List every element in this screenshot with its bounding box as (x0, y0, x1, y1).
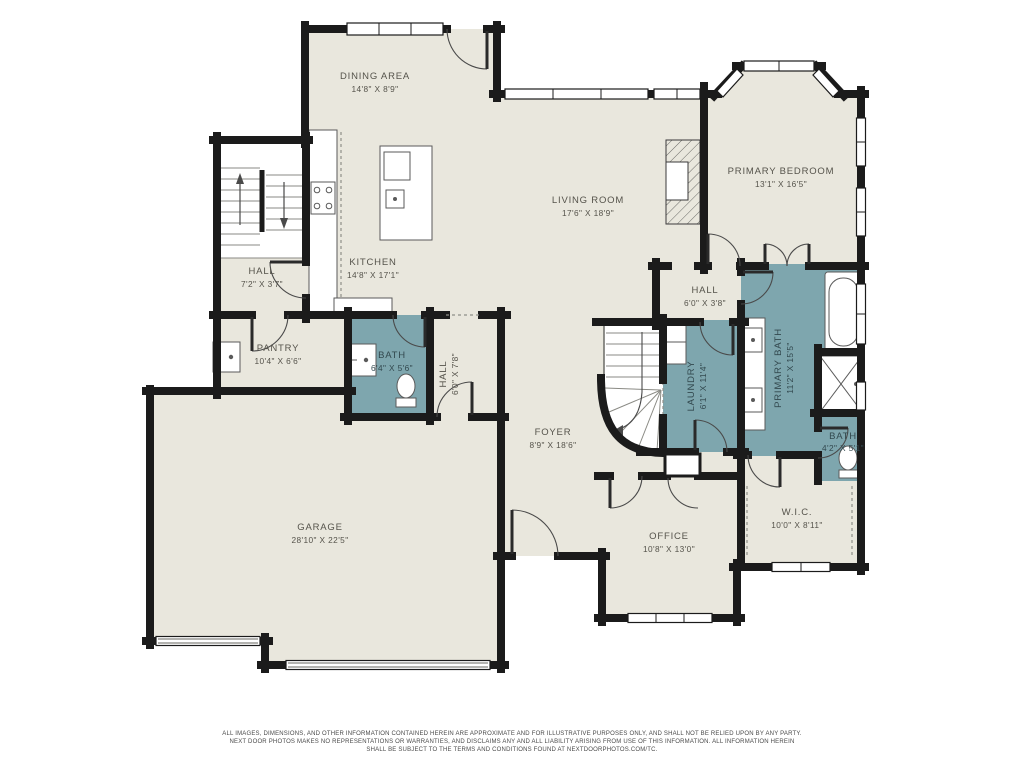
hall-mud-dims: 6'0" X 7'8" (450, 353, 460, 395)
hall-stairs-label: HALL (249, 266, 276, 277)
primary-bath-dims: 11'2" X 15'5" (785, 342, 795, 393)
kitchen-counter (309, 130, 337, 318)
hall-stairs-dims: 7'2" X 3'7" (241, 279, 283, 289)
foyer-dims: 8'9" X 18'6" (529, 440, 576, 450)
footer-disclaimer: ALL IMAGES, DIMENSIONS, AND OTHER INFORM… (222, 731, 802, 753)
range-stove (311, 182, 335, 214)
living-dims: 17'6" X 18'9" (562, 208, 614, 218)
office-window (628, 614, 712, 623)
dining-window (347, 23, 443, 35)
bath-small-label: BATH (829, 431, 857, 442)
hall-bedroom-label: HALL (692, 285, 719, 296)
stair-divider-wall (260, 170, 265, 232)
fireplace (666, 140, 700, 224)
garage-label: GARAGE (297, 522, 342, 533)
kitchen-label: KITCHEN (349, 257, 396, 268)
disclaimer-line-3: SHALL BE SUBJECT TO THE TERMS AND CONDIT… (366, 747, 657, 753)
pantry-label: PANTRY (257, 343, 299, 354)
wic-dims: 10'0" X 8'11" (771, 520, 822, 530)
foyer-label: FOYER (535, 427, 572, 438)
primary-bedroom-label: PRIMARY BEDROOM (728, 166, 835, 177)
primary-bedroom-dims: 13'1" X 16'5" (755, 179, 807, 189)
office-label: OFFICE (649, 531, 689, 542)
living-label: LIVING ROOM (552, 195, 624, 206)
kitchen-island (380, 146, 432, 240)
dining-label: DINING AREA (340, 71, 410, 82)
floor-plan-drawing: DINING AREA 14'8" X 8'9" LIVING ROOM 17'… (0, 0, 1024, 768)
hall-bedroom-dims: 6'0" X 3'8" (684, 298, 726, 308)
faucet-dot (229, 355, 233, 359)
laundry-label: LAUNDRY (686, 361, 697, 412)
bath-window-2 (857, 382, 866, 410)
dining-dims: 14'8" X 8'9" (351, 84, 398, 94)
kitchen-dims: 14'8" X 17'1" (347, 270, 399, 280)
office-closet (665, 454, 700, 476)
garage-door-left (156, 637, 260, 646)
bath-small-dims: 4'2" X 5'1" (822, 443, 864, 453)
faucet-dot (364, 358, 368, 362)
pantry-dims: 10'4" X 6'6" (254, 356, 301, 366)
bath-main-label: BATH (378, 350, 406, 361)
floor-plan-page: DINING AREA 14'8" X 8'9" LIVING ROOM 17'… (0, 0, 1024, 768)
garage-dims: 28'10" X 22'5" (291, 535, 348, 545)
primary-bath-label: PRIMARY BATH (773, 328, 784, 408)
fireplace-firebox (666, 162, 688, 200)
bath-main-dims: 6'4" X 5'6" (371, 363, 413, 373)
faucet-dot (393, 197, 397, 201)
laundry-dims: 6'1" X 11'4" (698, 363, 708, 409)
disclaimer-line-2: NEXT DOOR PHOTOS MAKES NO REPRESENTATION… (229, 739, 794, 745)
garage-door-right (286, 661, 490, 670)
living-window-left (505, 89, 648, 99)
wic-label: W.I.C. (782, 507, 813, 518)
disclaimer-line-1: ALL IMAGES, DIMENSIONS, AND OTHER INFORM… (222, 731, 802, 737)
office-dims: 10'8" X 13'0" (643, 544, 695, 554)
bath-main-toilet-bowl (397, 374, 415, 398)
bath-small-toilet-tank (839, 470, 858, 478)
hall-mud-label: HALL (438, 361, 449, 388)
faucet-dot (751, 398, 755, 402)
faucet-dot (751, 338, 755, 342)
bath-main-toilet-tank (396, 398, 416, 407)
